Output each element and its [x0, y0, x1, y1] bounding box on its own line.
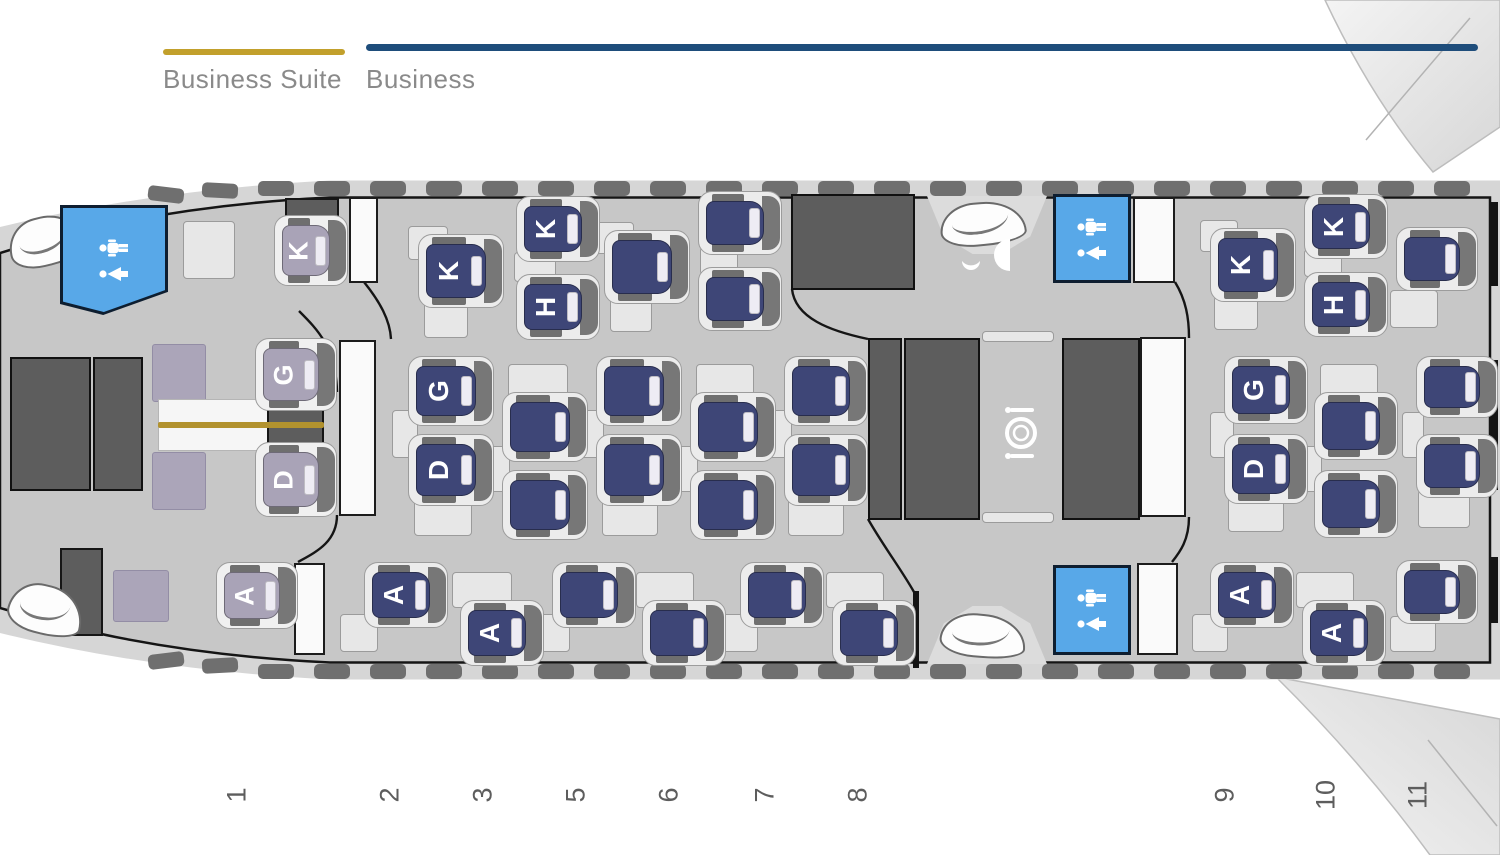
- seat-letter-2K: K: [433, 261, 465, 281]
- closet-panel: [1140, 337, 1186, 517]
- seat-headrest: [749, 284, 760, 314]
- seat-headrest: [471, 256, 482, 286]
- seat-headrest: [743, 412, 754, 442]
- seat-shell-inner: [756, 397, 774, 457]
- dining-icon: [996, 404, 1046, 462]
- seat-letter-1G: G: [269, 364, 300, 385]
- ottoman-panel: [982, 331, 1054, 342]
- seat-shell-inner: [278, 567, 296, 624]
- row-number-7: 7: [750, 787, 781, 802]
- seat-headrest: [1261, 580, 1272, 610]
- row-number-8: 8: [843, 787, 874, 802]
- seat-shell-inner: [1288, 439, 1306, 499]
- seat-headrest: [749, 208, 760, 238]
- seat-shell-inner: [328, 220, 346, 281]
- seat-letter-3A: A: [474, 623, 506, 643]
- seat-headrest: [567, 214, 578, 244]
- seat-shell-inner: [1276, 233, 1294, 297]
- ottoman-panel: [1390, 290, 1438, 328]
- seat-letter-9D: D: [1238, 459, 1270, 479]
- seat-shell-inner: [848, 361, 866, 421]
- seat-shell-inner: [756, 475, 774, 535]
- seat-headrest: [1275, 375, 1286, 405]
- seat-headrest: [743, 490, 754, 520]
- row-number-6: 6: [654, 787, 685, 802]
- seat-shell-inner: [524, 605, 542, 661]
- legend-line-business: [366, 44, 1478, 51]
- seat-shell-inner: [1274, 567, 1292, 623]
- closet-panel: [294, 563, 325, 655]
- seat-shell-inner: [762, 272, 780, 326]
- tail-fin-top: [1325, 0, 1500, 172]
- seat-letter-2A: A: [378, 585, 410, 605]
- seat-shell-inner: [896, 605, 914, 661]
- seat-headrest: [1445, 577, 1456, 607]
- seat-headrest: [657, 252, 668, 282]
- seat-headrest: [1465, 451, 1476, 481]
- seat-shell-inner: [1478, 361, 1496, 413]
- seat-shell-inner: [484, 239, 502, 303]
- seat-shell-inner: [474, 439, 492, 501]
- seat-headrest: [883, 618, 894, 648]
- seat-shell-inner: [1378, 475, 1396, 533]
- seat-headrest: [315, 236, 326, 266]
- seat-headrest: [791, 580, 802, 610]
- seat-shell-inner: [1478, 439, 1496, 493]
- seat-shell-inner: [1368, 199, 1386, 254]
- suite-side-panel: [152, 344, 206, 402]
- suite-side-panel: [113, 570, 169, 622]
- seat-headrest: [1355, 290, 1366, 320]
- galley-block: [1062, 338, 1140, 520]
- ottoman-panel: [982, 512, 1054, 523]
- seat-shell-inner: [568, 475, 586, 535]
- seat-headrest: [693, 618, 704, 648]
- divider-wall: [1491, 557, 1498, 623]
- lavatory-mid-top: [1053, 194, 1131, 283]
- seat-headrest: [415, 580, 426, 610]
- seat-shell-inner: [848, 439, 866, 501]
- seat-headrest: [265, 581, 276, 611]
- seat-shell-inner: [1368, 277, 1386, 332]
- business-class-seat-map: KGDAKKHKKHGDGDAAAA 123567891011 Business…: [0, 0, 1500, 855]
- seat-headrest: [555, 490, 566, 520]
- seat-shell-inner: [1458, 565, 1476, 619]
- closet-panel: [1137, 563, 1178, 655]
- legend-label-business: Business: [366, 64, 476, 95]
- seat-shell-inner: [580, 279, 598, 335]
- seat-shell-inner: [662, 439, 680, 501]
- seat-shell-inner: [670, 235, 688, 299]
- seat-shell-inner: [580, 201, 598, 257]
- seat-letter-1A: A: [230, 586, 261, 606]
- seat-letter-10K: K: [1318, 216, 1350, 236]
- row-number-10: 10: [1311, 780, 1342, 810]
- seat-headrest: [1445, 244, 1456, 274]
- seat-shell-inner: [1458, 232, 1476, 286]
- seat-shell-inner: [317, 343, 335, 406]
- seat-shell-inner: [428, 567, 446, 623]
- seat-shell-inner: [1288, 361, 1306, 419]
- row-number-1: 1: [222, 787, 253, 802]
- seat-headrest: [1365, 489, 1376, 519]
- closet-panel: [339, 340, 376, 516]
- seat-headrest: [461, 455, 472, 485]
- galley-block: [868, 338, 902, 520]
- seat-shell-inner: [1366, 605, 1384, 661]
- suite-side-panel: [152, 452, 206, 510]
- seat-letter-10H: H: [1318, 294, 1350, 314]
- seat-headrest: [603, 580, 614, 610]
- seat-letter-9A: A: [1224, 585, 1256, 605]
- closet-panel: [349, 197, 378, 283]
- seat-headrest: [1365, 411, 1376, 441]
- seat-headrest: [304, 465, 315, 495]
- seat-letter-1D: D: [269, 470, 300, 490]
- seat-shell-inner: [762, 196, 780, 250]
- bar-icon: [958, 232, 1014, 282]
- seat-letter-3H: H: [530, 297, 562, 317]
- seat-shell-inner: [616, 567, 634, 623]
- seat-headrest: [304, 360, 315, 390]
- galley-block: [904, 338, 980, 520]
- legend-line-business-suite: [163, 49, 345, 55]
- seat-letter-10A: A: [1316, 623, 1348, 643]
- seat-shell-inner: [662, 361, 680, 421]
- row-number-2: 2: [375, 787, 406, 802]
- legend-label-business-suite: Business Suite: [163, 64, 342, 95]
- seat-headrest: [649, 455, 660, 485]
- seat-headrest: [1355, 212, 1366, 242]
- seat-letter-9K: K: [1225, 255, 1257, 275]
- seat-headrest: [835, 376, 846, 406]
- man-woman-icon: [1075, 211, 1109, 267]
- seat-shell-inner: [804, 567, 822, 623]
- seat-headrest: [461, 376, 472, 406]
- seat-headrest: [567, 292, 578, 322]
- seat-shell-inner: [317, 447, 335, 512]
- seat-shell-inner: [1378, 397, 1396, 455]
- seat-letter-1K: K: [284, 241, 315, 261]
- seat-headrest: [835, 455, 846, 485]
- closet-panel: [1133, 197, 1175, 283]
- seat-shell-inner: [474, 361, 492, 421]
- divider-wall: [1491, 202, 1498, 286]
- galley-block: [10, 357, 91, 491]
- row-number-5: 5: [561, 787, 592, 802]
- row-number-11: 11: [1403, 781, 1434, 809]
- seat-shell-inner: [568, 397, 586, 457]
- seat-letter-3K: K: [530, 219, 562, 239]
- seat-headrest: [1263, 250, 1274, 280]
- seat-letter-2G: G: [423, 380, 455, 402]
- ottoman-panel: [183, 221, 235, 279]
- lavatory-mid-bottom: [1053, 565, 1131, 655]
- seat-headrest: [555, 412, 566, 442]
- row-number-9: 9: [1210, 787, 1241, 802]
- galley-block: [791, 194, 915, 290]
- seat-headrest: [1275, 454, 1286, 484]
- seat-headrest: [649, 376, 660, 406]
- seat-headrest: [1353, 618, 1364, 648]
- seat-headrest: [511, 618, 522, 648]
- seat-letter-2D: D: [423, 460, 455, 480]
- row-number-3: 3: [468, 787, 499, 802]
- seat-shell-inner: [706, 605, 724, 661]
- seat-letter-9G: G: [1238, 379, 1270, 401]
- gold-suite-divider: [158, 422, 324, 428]
- man-woman-icon: [97, 232, 131, 288]
- man-woman-icon: [1075, 582, 1109, 638]
- seat-headrest: [1465, 372, 1476, 402]
- tail-fin-bottom: [1276, 677, 1500, 855]
- galley-block: [93, 357, 143, 491]
